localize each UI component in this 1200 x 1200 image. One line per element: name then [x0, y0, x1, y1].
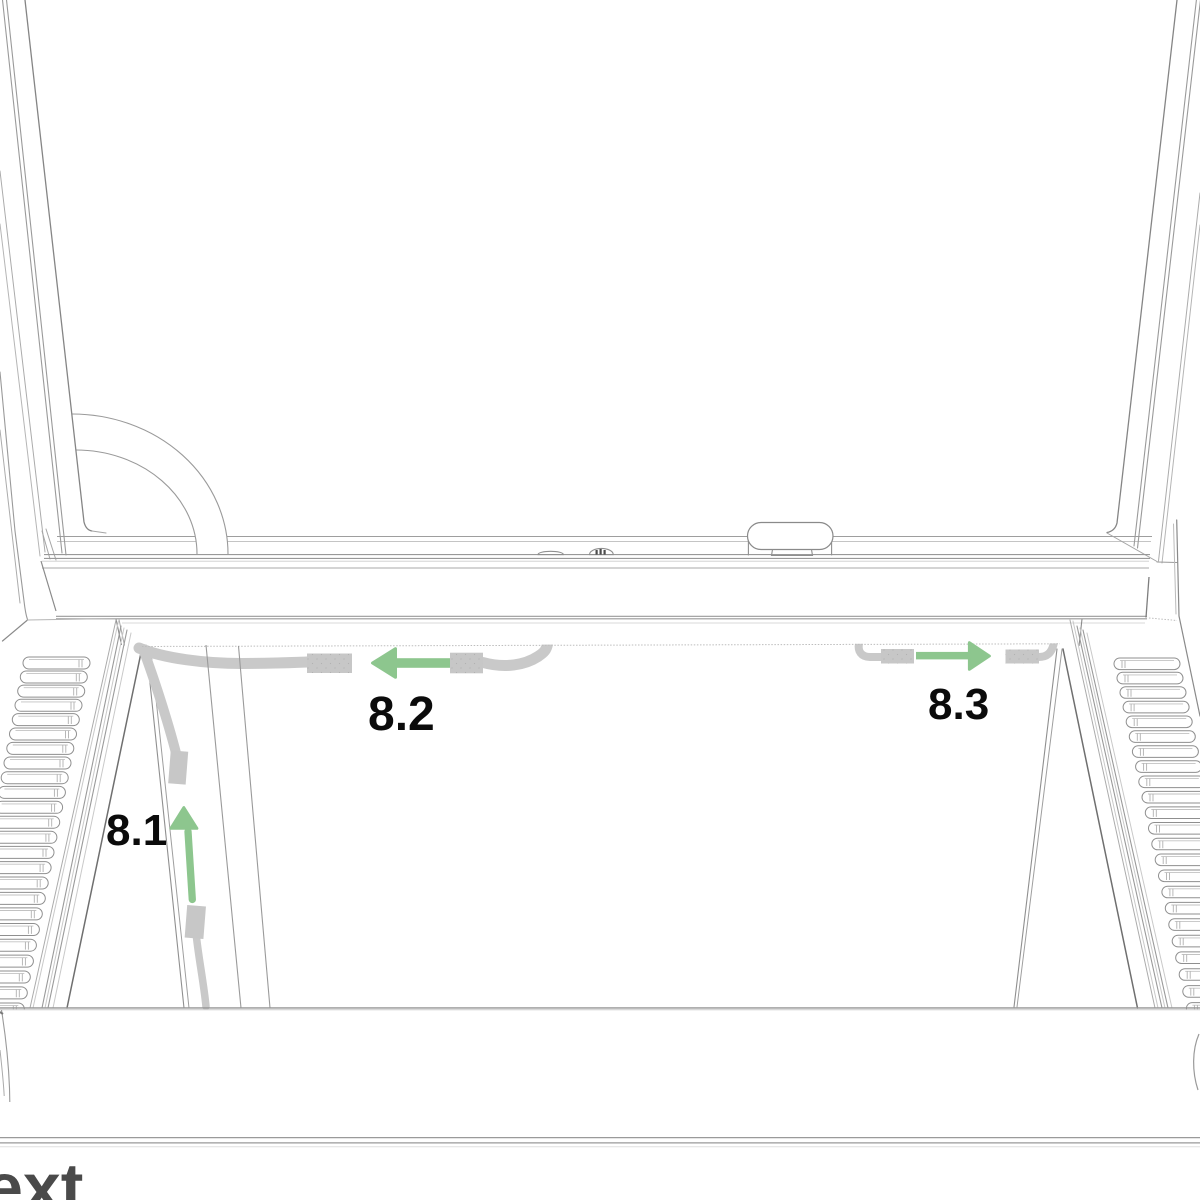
svg-text:8.3: 8.3 — [928, 680, 989, 729]
svg-text:8.1: 8.1 — [106, 806, 167, 855]
svg-text:Next: Next — [0, 1150, 83, 1200]
svg-text:8.2: 8.2 — [368, 688, 435, 741]
